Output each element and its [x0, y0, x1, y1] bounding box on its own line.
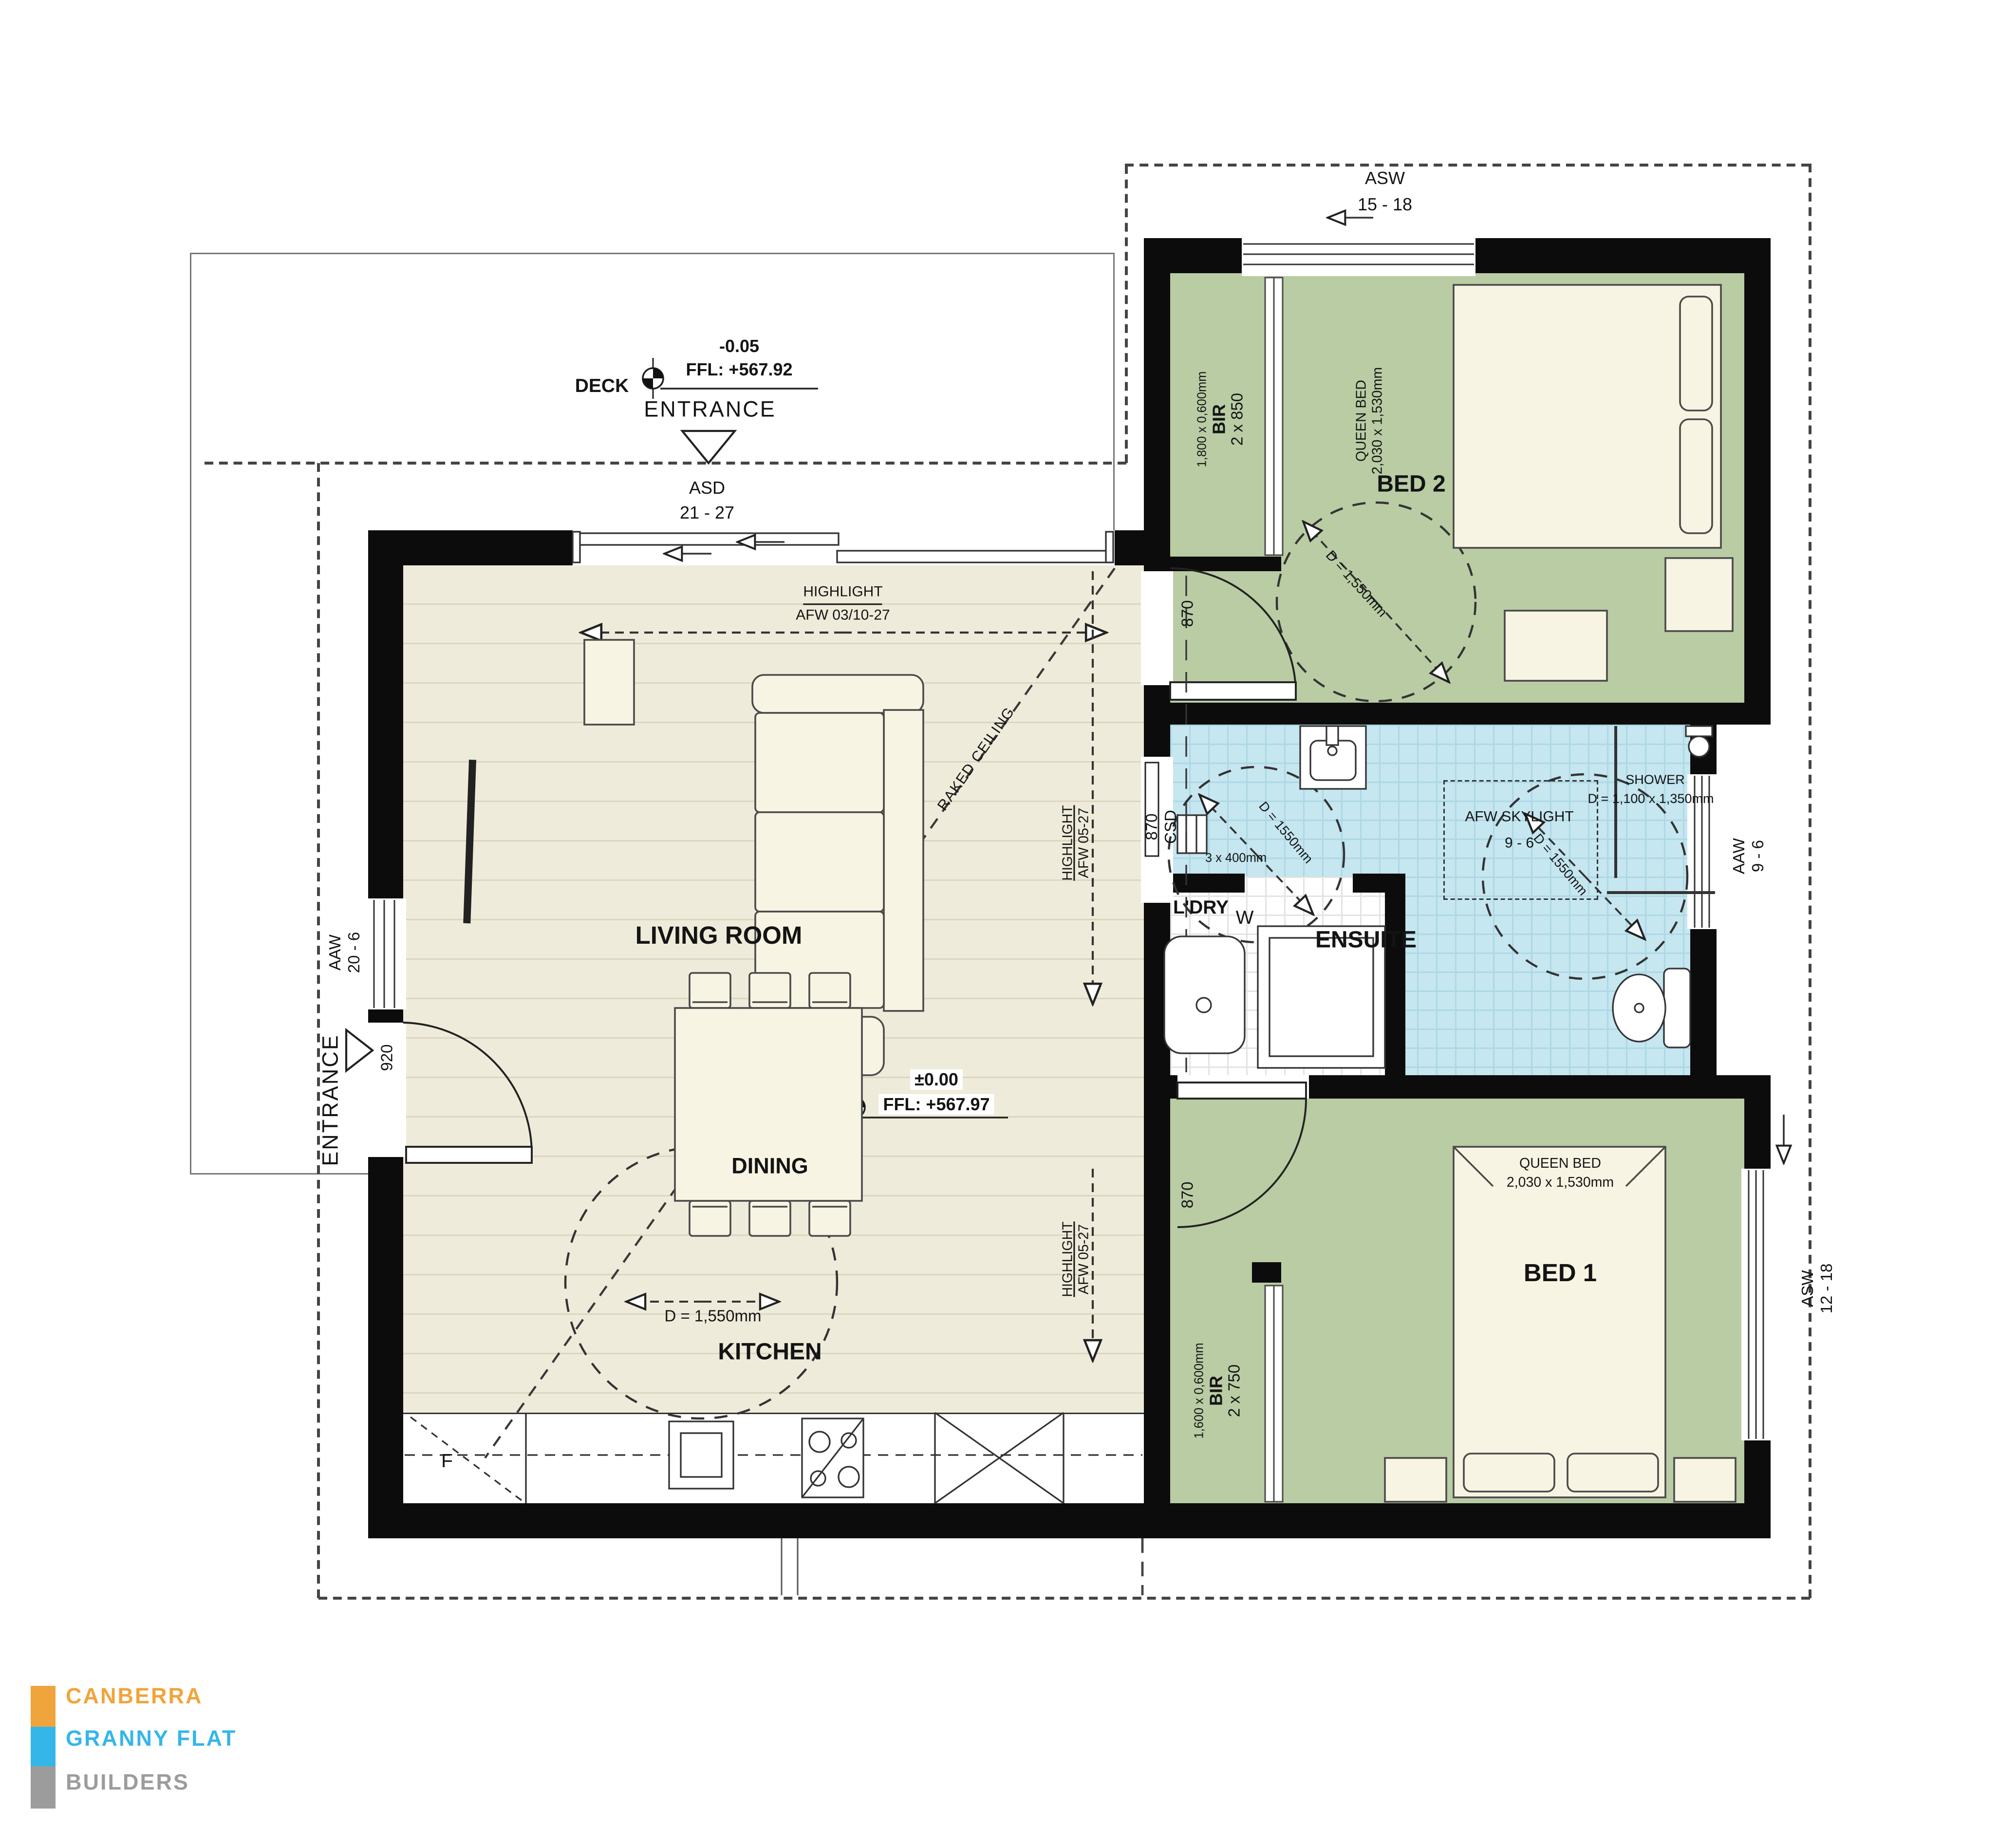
highlight-right-1-l2: AFW 05-27: [1077, 805, 1093, 880]
dining-label: DINING: [731, 1154, 808, 1180]
aaw-20-6-type: AAW: [327, 932, 346, 973]
logo-bar-orange: [31, 1686, 56, 1727]
entry-door-920-label: 920: [379, 1044, 398, 1071]
bed1-door-870-label: 870: [1180, 1181, 1199, 1208]
bed1-bir-l1: 1,600 x 0,600mm: [1191, 1343, 1206, 1438]
bed2-door-870-label: 870: [1180, 600, 1199, 627]
plan-linework: [0, 0, 1998, 1848]
fridge-label: F: [441, 1450, 453, 1472]
dining-turn-label: D = 1,550mm: [664, 1308, 761, 1327]
logo-bar-blue: [31, 1727, 56, 1766]
asw-15-18-size: 15 - 18: [1358, 194, 1412, 215]
kitchen-fittings: [405, 1413, 1142, 1503]
tv-unit: [463, 760, 476, 923]
bed1-bed-l2: 2,030 x 1,530mm: [1507, 1175, 1614, 1192]
bed2-label: BED 2: [1377, 473, 1445, 501]
coffee-table: [584, 640, 634, 725]
highlight-right-2-l2: AFW 05-27: [1077, 1221, 1093, 1297]
bed1-bir-l3: 2 x 750: [1227, 1343, 1246, 1438]
highlight-right-1: HIGHLIGHT AFW 05-27: [1060, 805, 1093, 880]
highlight-right-2: HIGHLIGHT AFW 05-27: [1060, 1221, 1093, 1297]
bed1-label: BED 1: [1524, 1259, 1597, 1288]
asw-12-18-type: ASW: [1800, 1264, 1819, 1314]
deck-ffl-level: -0.05: [719, 336, 759, 356]
highlight-right-1-l1: HIGHLIGHT: [1060, 805, 1077, 880]
bed2-bed-label: QUEEN BED 2,030 x 1,530mm: [1354, 367, 1386, 474]
logo-line2: GRANNY FLAT: [66, 1727, 237, 1752]
asw-12-18-label: ASW 12 - 18: [1800, 1264, 1838, 1314]
living-ffl-level: ±0.00: [910, 1069, 963, 1090]
living-ffl-value: FFL: +567.97: [878, 1094, 994, 1115]
bed2-bir-l1: 1,800 x 0,600mm: [1194, 371, 1209, 467]
kitchen-label: KITCHEN: [718, 1341, 822, 1368]
logo-line3: BUILDERS: [66, 1771, 189, 1795]
aaw-20-6-size: 20 - 6: [346, 932, 365, 973]
ensuite-shelves-label: 3 x 400mm: [1205, 850, 1267, 865]
logo-bar-gray: [31, 1766, 56, 1809]
asw-12-18-size: 12 - 18: [1819, 1264, 1838, 1314]
aaw-9-6-type: AAW: [1731, 838, 1750, 874]
ensuite-csd-l2: CSD: [1163, 810, 1182, 844]
bed2-bed-l2: 2,030 x 1,530mm: [1370, 367, 1387, 474]
shower-size-label: D = 1,100 x 1,350mm: [1588, 791, 1714, 807]
shower-label: SHOWER: [1625, 772, 1685, 788]
laundry-label: L'DRY: [1173, 896, 1229, 918]
washer-label: W: [1236, 906, 1254, 929]
dining-set: [675, 973, 862, 1236]
deck-label: DECK: [575, 374, 629, 397]
deck-ffl-value: FFL: +567.92: [686, 359, 792, 380]
bed2-bed-l1: QUEEN BED: [1354, 367, 1370, 474]
bed2-furniture: [1265, 278, 1733, 681]
entrance-arrow-icons: [346, 431, 735, 1071]
aaw-20-6-label: AAW 20 - 6: [327, 932, 365, 973]
living-room-label: LIVING ROOM: [635, 922, 803, 951]
asw-15-18-type: ASW: [1365, 168, 1405, 188]
bed1-bir-label: 1,600 x 0,600mm BIR 2 x 750: [1191, 1343, 1245, 1438]
aaw-9-6-size: 9 - 6: [1750, 838, 1769, 874]
asd-door-type: ASD: [689, 478, 725, 498]
deck-entrance-label: ENTRANCE: [644, 397, 776, 423]
highlight-top-l2: AFW 03/10-27: [796, 608, 890, 625]
floor-plan-sheet: DECK -0.05 FFL: +567.92 ENTRANCE ASD 21 …: [0, 0, 1998, 1848]
highlight-top-l1: HIGHLIGHT: [803, 584, 882, 604]
skylight-l1: AFW SKYLIGHT: [1465, 809, 1573, 826]
bed1-bed-l1: QUEEN BED: [1519, 1156, 1601, 1173]
bed2-bir-l2: BIR: [1209, 371, 1229, 467]
bed2-bir-label: 1,800 x 0,600mm BIR 2 x 850: [1194, 371, 1248, 467]
ensuite-csd-label: 870 CSD: [1144, 810, 1182, 844]
bed1-furniture: [1265, 1147, 1736, 1502]
service-lines: [782, 1538, 1142, 1595]
bed2-bir-l3: 2 x 850: [1230, 371, 1249, 467]
ensuite-label: ENSUITE: [1315, 929, 1417, 956]
logo-line1: CANBERRA: [66, 1684, 203, 1709]
skylight-l2: 9 - 6: [1505, 836, 1534, 853]
asd-sliding-panels: [573, 532, 1113, 562]
aaw-9-6-label: AAW 9 - 6: [1731, 838, 1769, 874]
bed1-bir-l2: BIR: [1206, 1343, 1226, 1438]
asd-door-size: 21 - 27: [680, 503, 734, 523]
west-entrance-label: ENTRANCE: [318, 1034, 344, 1166]
highlight-right-2-l1: HIGHLIGHT: [1060, 1221, 1077, 1297]
ensuite-csd-l1: 870: [1144, 810, 1163, 844]
floor-plan: DECK -0.05 FFL: +567.92 ENTRANCE ASD 21 …: [0, 0, 1998, 1848]
